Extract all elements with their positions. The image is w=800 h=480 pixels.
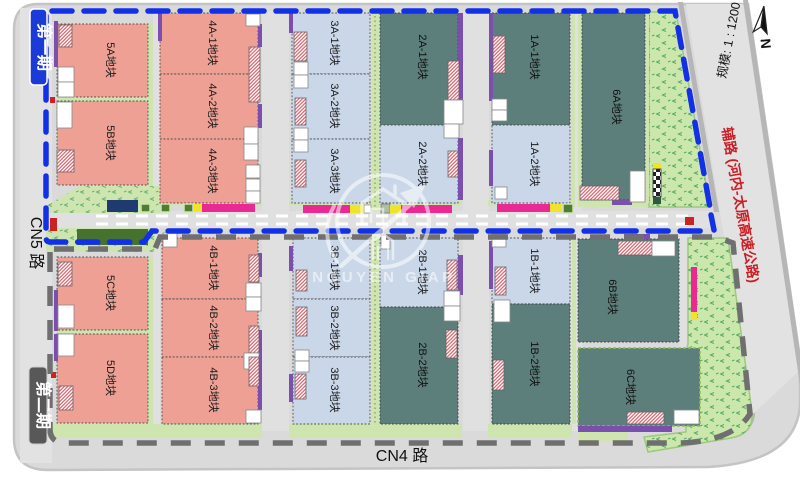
svg-text:6C地块: 6C地块 — [624, 369, 637, 405]
svg-text:4B-2地块: 4B-2地块 — [207, 305, 220, 350]
svg-text:CN4 路: CN4 路 — [376, 447, 428, 465]
svg-text:3A-1地块: 3A-1地块 — [328, 20, 341, 65]
svg-text:1B-1地块: 1B-1地块 — [528, 248, 541, 293]
svg-text:5C地块: 5C地块 — [104, 275, 117, 311]
svg-text:2A-2地块: 2A-2地块 — [416, 141, 429, 186]
svg-text:5A地块: 5A地块 — [104, 42, 117, 77]
svg-text:3A-3地块: 3A-3地块 — [328, 148, 341, 193]
svg-text:N: N — [758, 38, 775, 49]
svg-text:2A-1地块: 2A-1地块 — [416, 34, 429, 79]
svg-text:4A-2地块: 4A-2地块 — [206, 83, 219, 128]
svg-text:3B-2地块: 3B-2地块 — [328, 305, 341, 350]
svg-text:4B-3地块: 4B-3地块 — [207, 367, 220, 412]
svg-text:1A-2地块: 1A-2地块 — [528, 141, 541, 186]
svg-text:2B-2地块: 2B-2地块 — [416, 342, 429, 387]
svg-text:5D地块: 5D地块 — [104, 360, 117, 396]
svg-text:6A地块: 6A地块 — [610, 89, 623, 124]
svg-text:第二期: 第二期 — [34, 381, 53, 429]
svg-text:4B-1地块: 4B-1地块 — [207, 245, 220, 290]
svg-text:3B-3地块: 3B-3地块 — [328, 367, 341, 412]
svg-text:5B地块: 5B地块 — [104, 125, 117, 160]
svg-text:4A-3地块: 4A-3地块 — [206, 148, 219, 193]
svg-text:6B地块: 6B地块 — [606, 279, 619, 314]
svg-text:1A-1地块: 1A-1地块 — [528, 34, 541, 79]
svg-text:4A-1地块: 4A-1地块 — [206, 20, 219, 65]
svg-text:NGUYEN GIAP: NGUYEN GIAP — [312, 269, 456, 286]
svg-text:3A-2地块: 3A-2地块 — [328, 83, 341, 128]
svg-text:CN5 路: CN5 路 — [27, 217, 45, 269]
svg-text:1B-2地块: 1B-2地块 — [528, 341, 541, 386]
svg-text:第一期: 第一期 — [35, 23, 54, 71]
